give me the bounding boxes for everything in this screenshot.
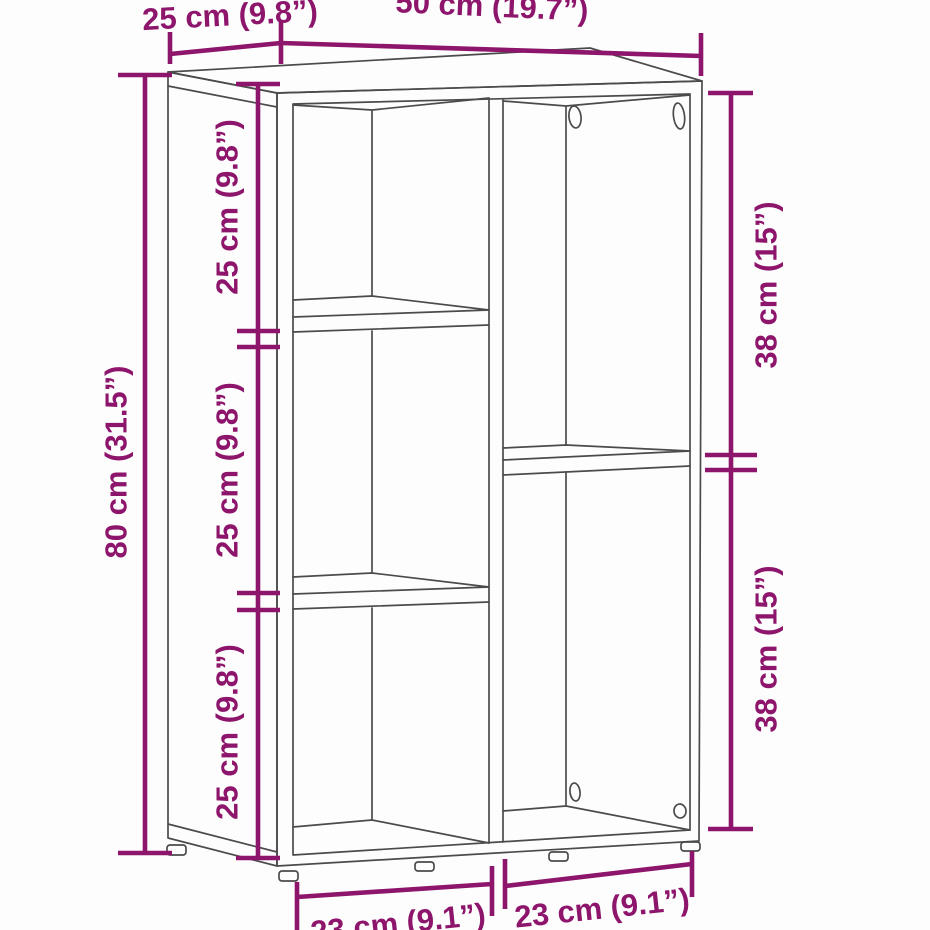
foot: [279, 871, 298, 881]
dimension-labels: 25 cm (9.8”) 50 cm (19.7”) 80 cm (31.5”)…: [99, 0, 784, 930]
dim-label-bottom-left: 23 cm (9.1”): [309, 896, 487, 930]
foot: [549, 852, 568, 861]
cabinet-front-frame-inner: [293, 94, 690, 855]
dim-label-right-cell-2: 38 cm (15”): [749, 565, 784, 732]
cabinet-drawing: [167, 48, 702, 881]
cell-interior-right-top: [503, 95, 690, 445]
dim-label-height: 80 cm (31.5”): [99, 366, 134, 559]
dim-label-left-cell-2: 25 cm (9.8”): [210, 382, 245, 558]
dim-label-left-cell-1: 25 cm (9.8”): [210, 119, 245, 295]
cell-interior-left-bottom: [293, 608, 489, 843]
dim-label-width: 50 cm (19.7”): [395, 0, 589, 28]
dim-width-line: [281, 33, 701, 76]
cell-interior-left-top: [293, 98, 489, 296]
dim-label-depth: 25 cm (9.8”): [141, 0, 318, 37]
product-dimension-diagram: 25 cm (9.8”) 50 cm (19.7”) 80 cm (31.5”)…: [0, 0, 930, 930]
dim-label-right-cell-1: 38 cm (15”): [749, 201, 784, 368]
cabinet-center-divider: [489, 100, 503, 843]
shelf-right-middle: [503, 445, 690, 475]
mounting-hole: [569, 782, 581, 801]
foot: [415, 862, 434, 871]
shelf-left-lower: [293, 573, 489, 609]
mounting-hole: [568, 105, 583, 128]
shelf-left-upper: [293, 296, 489, 332]
dim-label-bottom-right: 23 cm (9.1”): [513, 881, 691, 930]
dim-label-left-cell-3: 25 cm (9.8”): [210, 644, 245, 820]
shelf-diagram-svg: 25 cm (9.8”) 50 cm (19.7”) 80 cm (31.5”)…: [0, 0, 930, 930]
mounting-hole: [672, 102, 686, 129]
cabinet-left-panel-bottom-edge: [168, 824, 277, 852]
foot: [681, 842, 700, 851]
mounting-hole: [673, 803, 687, 818]
cell-interior-right-bottom: [503, 472, 690, 830]
